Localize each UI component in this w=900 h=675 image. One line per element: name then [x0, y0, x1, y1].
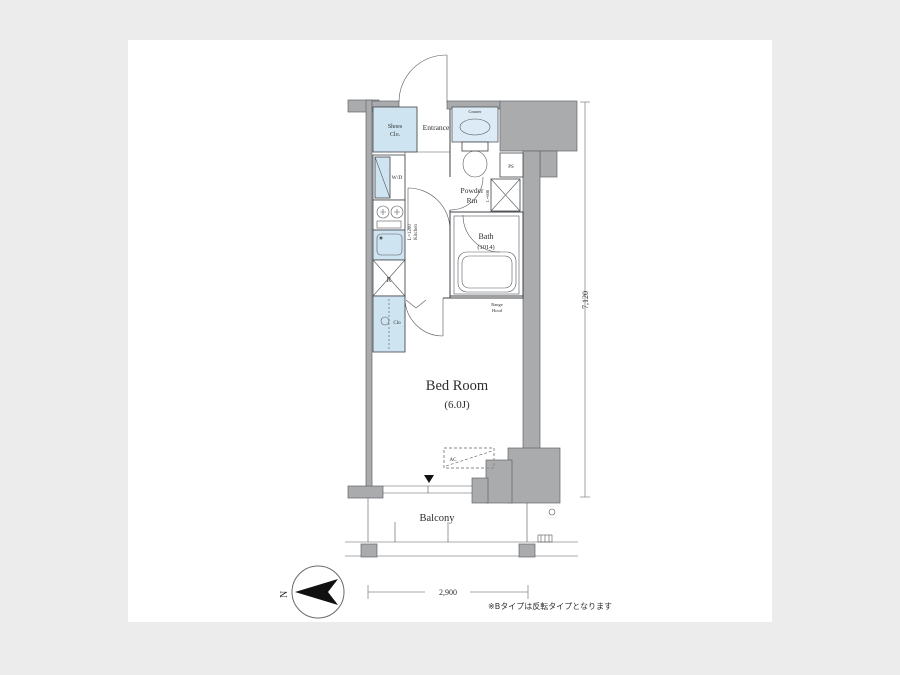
bath-label-2: (1014): [477, 244, 494, 251]
ac-label: AC: [450, 458, 458, 463]
bedroom-label-2: (6.0J): [444, 399, 470, 411]
balcony-post: [361, 544, 377, 557]
kitchen-label: Kitchen: [414, 224, 419, 240]
wall-bottom-left-stub: [348, 486, 383, 498]
floorplan-svg: Shoes Clo. W/D R Clo L=1200 Kitchen Entr…: [0, 0, 900, 675]
wall-left: [366, 100, 372, 490]
floorplan-image: Shoes Clo. W/D R Clo L=1200 Kitchen Entr…: [0, 0, 900, 675]
bedroom-label-1: Bed Room: [426, 378, 489, 394]
bath-label-1: Bath: [478, 232, 493, 241]
washer-dryer-label: W/D: [392, 175, 403, 181]
entrance-label: Entrance: [423, 123, 450, 132]
closet-label: Clo: [393, 321, 401, 326]
counter-label: Counter: [469, 109, 483, 114]
pipe-space-label: PS: [508, 165, 514, 170]
wall-se-block: [508, 448, 560, 503]
shoes-closet-label-1: Shoes: [388, 124, 403, 130]
dimension-height-label: 7,120: [581, 291, 590, 309]
range-hood-label-2: Hood: [492, 308, 503, 313]
kitchen-length-label: L=1200: [408, 224, 413, 240]
dimension-width-label: 2,900: [439, 588, 457, 597]
compass-north-label: N: [279, 591, 290, 598]
faucet-icon: [380, 237, 383, 240]
shoes-closet-label-2: Clo.: [390, 132, 401, 138]
wall-se-block-ext: [486, 460, 512, 503]
toilet-tank-icon: [462, 142, 488, 151]
wall-top-right-block: [500, 101, 577, 151]
footnote-text: ※Bタイプは反転タイプとなります: [488, 601, 612, 611]
washer-size-label: L=608: [485, 189, 490, 202]
wall-step: [540, 151, 557, 177]
balcony-post: [519, 544, 535, 557]
fridge-label: R: [387, 276, 392, 284]
balcony-label: Balcony: [420, 513, 456, 524]
wall-se-step: [472, 478, 488, 503]
range-hood-label-1: Range: [491, 302, 503, 307]
wall-right-bar: [523, 151, 540, 451]
